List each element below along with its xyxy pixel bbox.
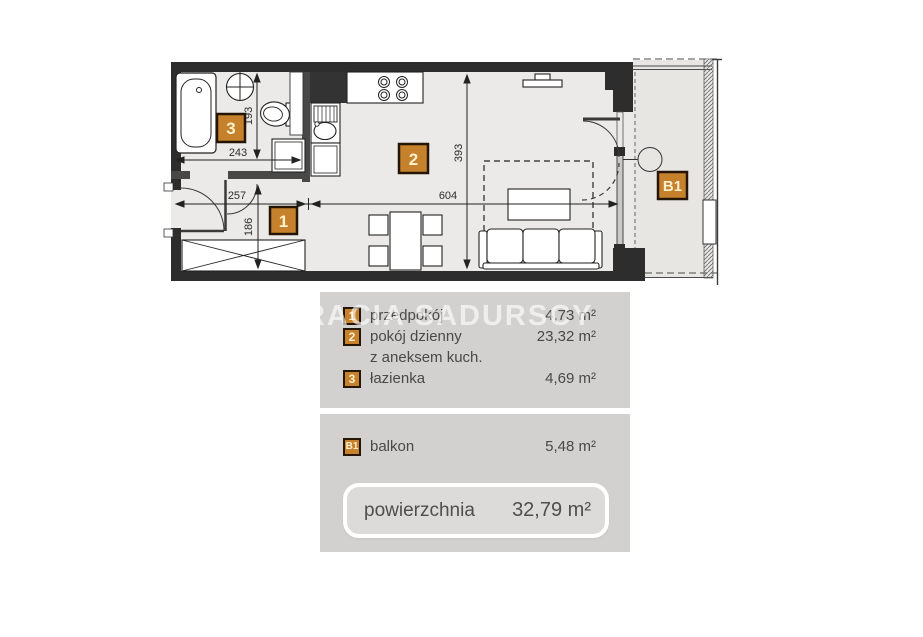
badge-balcony-b1-label: B1 xyxy=(663,178,682,195)
legend-row-living-cont: z aneksem kuch. xyxy=(343,347,596,368)
badge-room-2-label: 2 xyxy=(409,150,418,169)
wardrobe-icon xyxy=(182,240,305,271)
badge-room-3: 3 xyxy=(217,114,245,142)
balcony-edge-line xyxy=(712,60,722,286)
legend-row-hall: 1 przedpokój 4,73 m² xyxy=(343,305,596,326)
legend-row-bath: 3 łazienka 4,69 m² xyxy=(343,368,596,389)
legend-area-living: 23,32 m² xyxy=(537,328,596,345)
legend-badge-1: 1 xyxy=(343,307,361,325)
floorplan-page: { "watermark": { "text": "BRACIA SADURSC… xyxy=(0,0,923,637)
balcony-floor xyxy=(633,60,713,278)
balcony-pillar xyxy=(703,200,716,244)
legend-badge-2: 2 xyxy=(343,328,361,346)
badge-room-3-label: 3 xyxy=(226,119,235,138)
balcony-railing-hatch xyxy=(704,59,713,278)
legend-area-bath: 4,69 m² xyxy=(545,370,596,387)
dim-186: 186 xyxy=(243,218,255,236)
total-area-value: 32,79 m² xyxy=(512,499,591,522)
bathroom-duct xyxy=(290,72,303,135)
badge-room-2: 2 xyxy=(399,144,428,173)
kitchen-sink-icon xyxy=(311,103,340,143)
legend-area-balcony: 5,48 m² xyxy=(545,438,596,455)
legend-label-bath: łazienka xyxy=(370,370,545,387)
legend-row-balcony: B1 balkon 5,48 m² xyxy=(343,436,596,457)
dim-257: 257 xyxy=(228,190,246,202)
bathtub-icon xyxy=(176,73,216,153)
badge-room-1: 1 xyxy=(270,207,297,234)
legend-badge-b1: B1 xyxy=(343,438,361,456)
total-area-box: powierzchnia 32,79 m² xyxy=(343,483,609,538)
washing-machine-icon xyxy=(272,139,305,172)
legend-label-hall: przedpokój xyxy=(370,307,545,324)
dim-393: 393 xyxy=(453,144,465,162)
kitchen-cabinet xyxy=(311,143,340,176)
badge-balcony-b1: B1 xyxy=(658,172,687,199)
sofa-icon xyxy=(479,229,602,269)
legend-row-living: 2 pokój dzienny 23,32 m² xyxy=(343,326,596,347)
legend-panel-balcony: B1 balkon 5,48 m² powierzchnia 32,79 m² xyxy=(320,414,630,552)
badge-room-1-label: 1 xyxy=(279,212,288,231)
dim-604: 604 xyxy=(439,190,457,202)
legend-badge-3: 3 xyxy=(343,370,361,388)
legend-label-living-cont: z aneksem kuch. xyxy=(370,349,596,366)
legend-label-living: pokój dzienny xyxy=(370,328,537,345)
total-area-label: powierzchnia xyxy=(364,500,475,522)
dim-243: 243 xyxy=(229,147,247,159)
kitchen-tall-cabinet xyxy=(310,72,347,103)
legend-area-hall: 4,73 m² xyxy=(545,307,596,324)
stove-icon xyxy=(347,72,423,103)
legend-panel-rooms: 1 przedpokój 4,73 m² 2 pokój dzienny 23,… xyxy=(320,292,630,408)
floorplan-drawing: 243 193 257 604 186 393 3 1 2 xyxy=(0,0,923,300)
legend-label-balcony: balkon xyxy=(370,438,545,455)
